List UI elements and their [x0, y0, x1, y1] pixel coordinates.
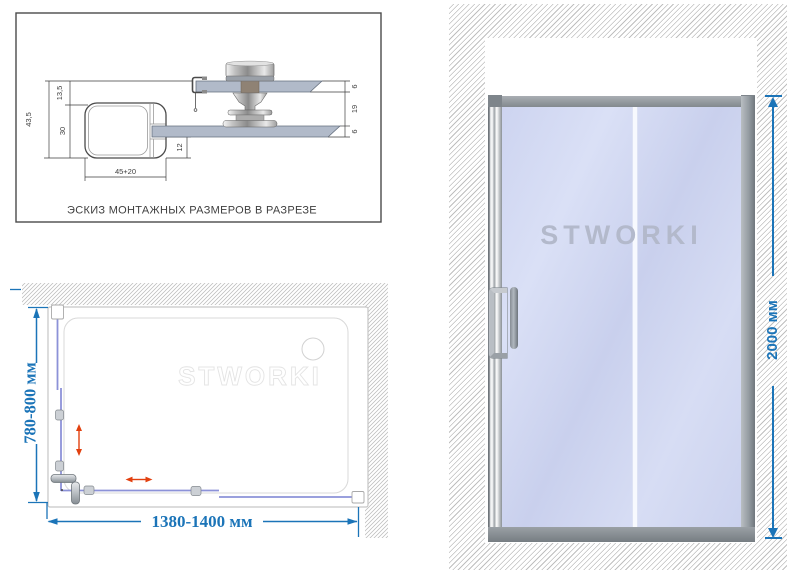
dim-top-inset: 13,5: [55, 86, 64, 101]
glass-divider: [632, 107, 638, 527]
product-dimension-sheet: 43,5 13,5 30 12 45+20 6 19 6: [0, 0, 790, 576]
sketch-caption: ЭСКИЗ МОНТАЖНЫХ РАЗМЕРОВ В РАЗРЕЗЕ: [67, 205, 317, 217]
dim-glass-to-bottom: 12: [175, 143, 184, 151]
dim-total-height: 43,5: [24, 112, 33, 127]
brand-logo: STWORKI: [502, 219, 741, 251]
dim-profile-height: 30: [58, 127, 67, 135]
dim-height-line-lower: [772, 386, 774, 530]
dim-width-label: 1380-1400 мм: [151, 512, 252, 531]
wall-hatch-top: [22, 283, 388, 305]
door-right-profile: [741, 96, 755, 542]
door-glass: [502, 107, 741, 527]
roller-wheel-groove: [236, 115, 264, 121]
section-sketch-panel: 43,5 13,5 30 12 45+20 6 19 6: [10, 5, 395, 235]
plan-view-panel: STWORKI: [8, 281, 392, 572]
dim-height-label: 2000 мм: [758, 275, 788, 385]
door-bottom-rail: [488, 527, 755, 542]
dim-height-line-upper: [772, 106, 774, 276]
dim-height-cap-bottom: [765, 537, 782, 539]
dim-depth-label: 780-800 мм: [21, 362, 40, 444]
plan-handle-horizontal: [51, 475, 76, 483]
lower-glass-panel: [152, 126, 340, 137]
roller-wheel-top: [228, 110, 272, 115]
sketch-border: [16, 13, 381, 222]
corner-point: [61, 489, 63, 491]
dim-lower-glass: 6: [350, 129, 359, 133]
door-handle-bracket: [489, 288, 507, 358]
drain: [302, 338, 324, 360]
dim-upper-glass: 6: [350, 84, 359, 88]
wall-profile-top: [52, 305, 64, 319]
dim-width: 1380-1400 мм: [47, 503, 359, 537]
shower-tray: [48, 307, 368, 507]
roller-neck: [241, 80, 259, 93]
top-rail-cap-left: [488, 95, 502, 107]
tray-watermark: STWORKI: [178, 361, 322, 391]
dim-profile-width: 45+20: [115, 167, 136, 176]
door-handle-bar: [510, 287, 518, 349]
dim-depth: 780-800 мм: [21, 308, 49, 503]
dim-roller-gap: 19: [350, 105, 359, 113]
plan-handle-vertical: [72, 482, 80, 504]
wall-profile-right: [352, 492, 364, 504]
roller-wheel-flange: [223, 121, 277, 128]
door-top-rail: [488, 96, 755, 107]
